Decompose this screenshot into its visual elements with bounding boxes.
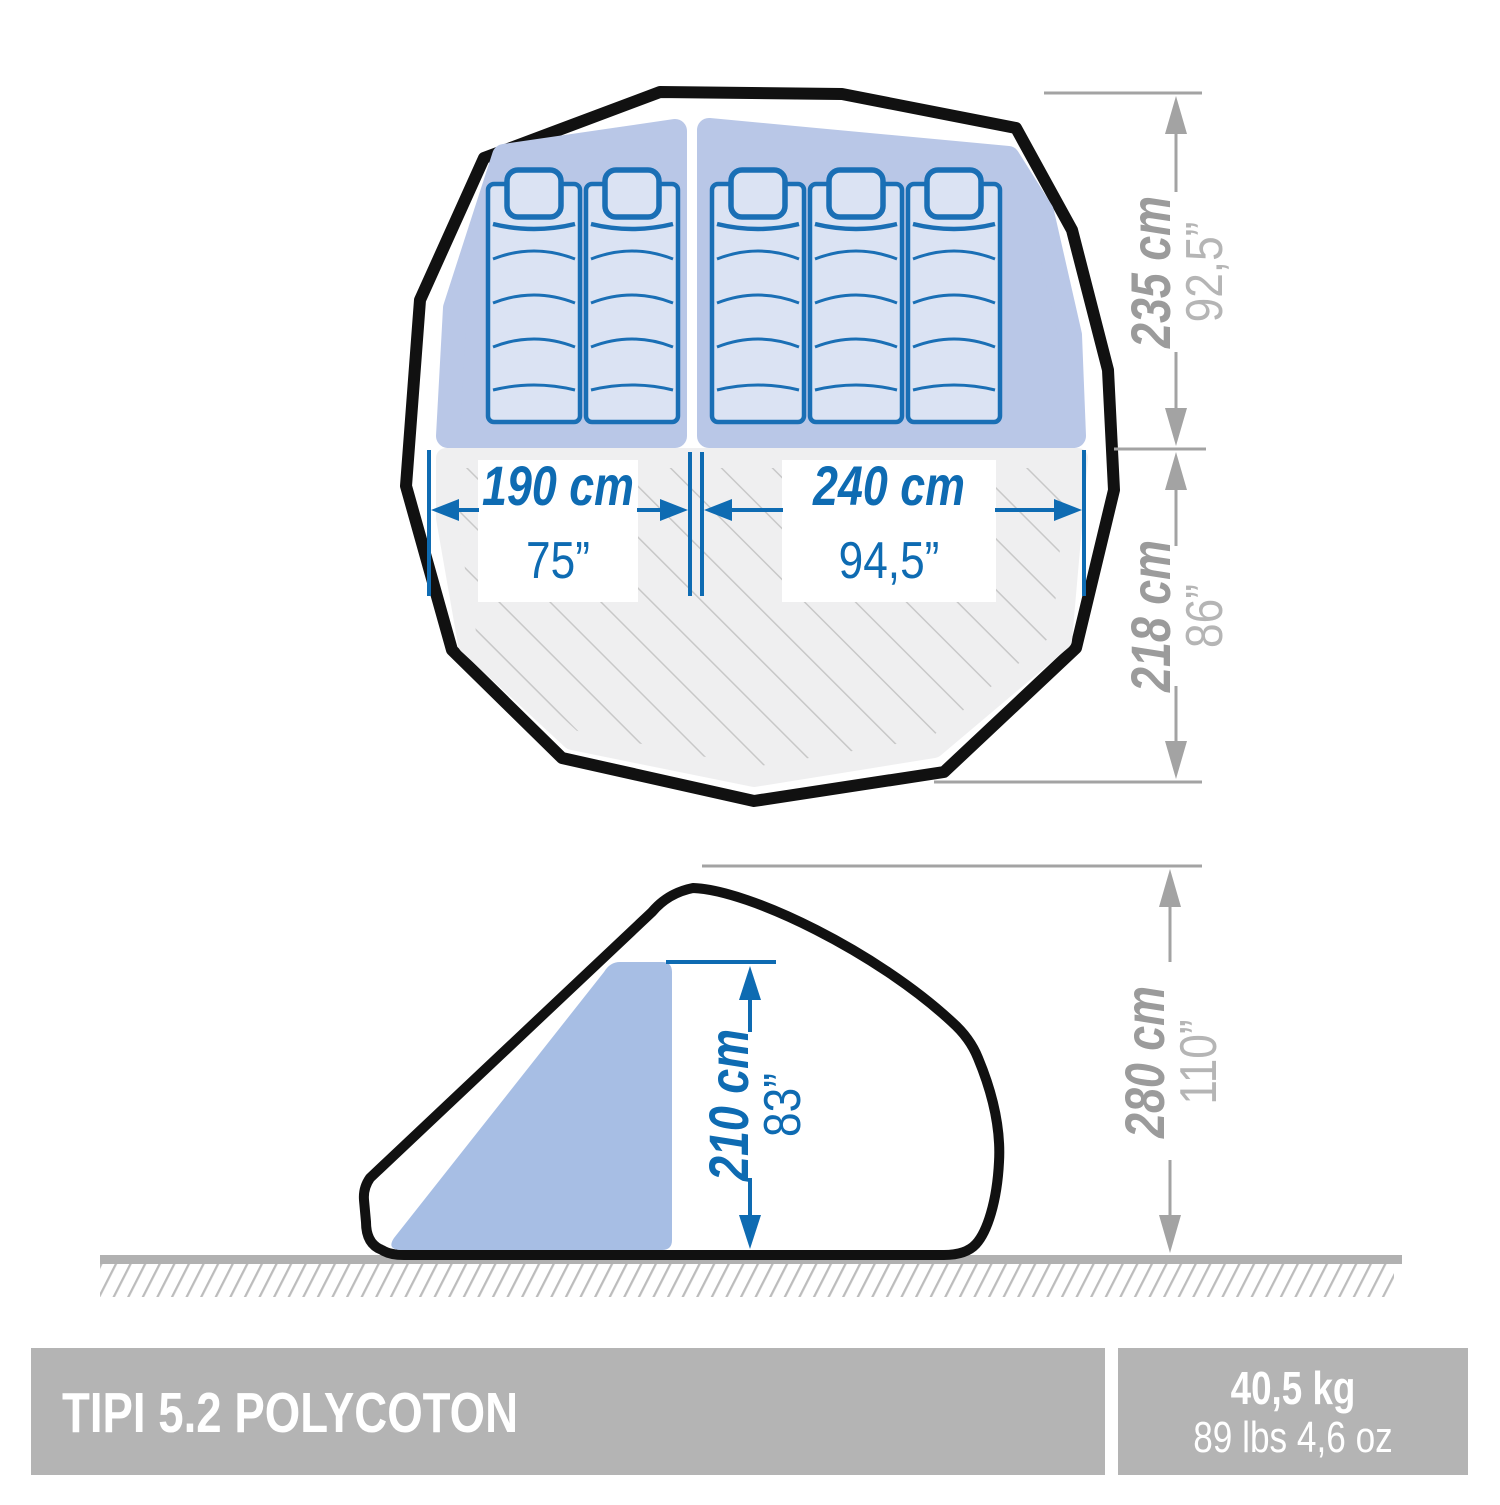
side-view-profile: 210 cm 83” 280 cm 110” — [100, 866, 1402, 1297]
left-width-in: 75” — [526, 532, 590, 590]
diagram-canvas: 190 cm 75” 240 cm 94,5” 235 cm 92,5” 218… — [0, 0, 1500, 1500]
top-view-floorplan: 190 cm 75” 240 cm 94,5” 235 cm 92,5” 218… — [406, 92, 1234, 801]
mattress — [712, 170, 804, 422]
product-weight-imperial: 89 lbs 4,6 oz — [1193, 1413, 1393, 1462]
product-weight-metric: 40,5 kg — [1231, 1362, 1356, 1414]
living-depth-in: 86” — [1176, 584, 1234, 648]
interior-height-in: 83” — [754, 1073, 812, 1137]
mattress — [488, 170, 580, 422]
footer: TIPI 5.2 POLYCOTON 40,5 kg 89 lbs 4,6 oz — [31, 1348, 1468, 1475]
mattress — [908, 170, 1000, 422]
interior-height-cm: 210 cm — [697, 1029, 760, 1182]
interior-height-area — [391, 962, 672, 1250]
left-width-cm: 190 cm — [482, 454, 634, 517]
living-depth-cm: 218 cm — [1119, 540, 1182, 693]
sleeping-depth-cm: 235 cm — [1119, 196, 1182, 349]
mattress — [810, 170, 902, 422]
sleeping-depth-in: 92,5” — [1176, 222, 1234, 323]
ground-hatch — [100, 1264, 1394, 1297]
mattress — [586, 170, 678, 422]
total-height-in: 110” — [1170, 1019, 1228, 1104]
product-name: TIPI 5.2 POLYCOTON — [62, 1380, 518, 1444]
right-width-in: 94,5” — [839, 532, 940, 590]
tent-spec-diagram: 190 cm 75” 240 cm 94,5” 235 cm 92,5” 218… — [0, 0, 1500, 1500]
total-height-cm: 280 cm — [1113, 986, 1176, 1139]
right-width-cm: 240 cm — [812, 454, 965, 517]
